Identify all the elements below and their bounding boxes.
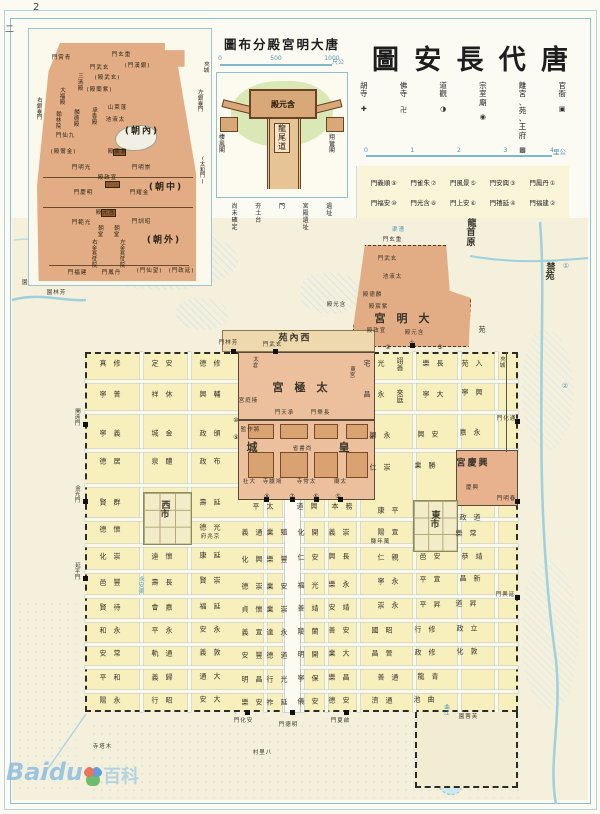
margin-tick-number: ① — [563, 262, 569, 270]
daming-inset-label: ( 太 和 門 ) — [200, 157, 207, 186]
government-office-block — [314, 424, 338, 439]
scale-tick: 1 — [410, 146, 414, 154]
ward-label: 樂豐 — [260, 556, 295, 563]
daming-inset-label: 殿宸紫 — [107, 150, 128, 156]
legend-item: 佛 寺卍 — [400, 82, 408, 154]
hanyuan-plan-box: 殿元含 龍 尾 道 棲 鳳 閣 翔 鸞 閣 — [216, 72, 348, 198]
ward-label: 寧保 — [291, 675, 326, 682]
ward-label: 道興 — [290, 503, 325, 510]
title-char: 唐 — [541, 38, 568, 77]
ward-label: 樂長 — [416, 360, 451, 367]
government-office-block — [280, 452, 308, 478]
daming-inset-label: (殿鸞金) — [50, 150, 77, 156]
region-label: 宮明大 — [364, 313, 441, 325]
street-line — [85, 449, 238, 452]
scale-tick: 0 — [218, 55, 222, 62]
ward-label: 陵蘭 — [291, 628, 326, 635]
ward-label: 昌永 — [357, 391, 392, 398]
daming-inset-label: 池液太 — [105, 118, 126, 124]
gate-label: 延 平 門 — [74, 564, 82, 581]
ward-label: 仁安 — [291, 554, 326, 561]
gate-square-marker — [83, 576, 88, 581]
daming-inset-label: (門政延) — [168, 269, 195, 275]
street-line — [85, 643, 518, 646]
hall-marker — [105, 181, 120, 188]
daming-inset-label: 門明崇 — [131, 166, 152, 172]
daming-inset-label: 門範光 — [71, 221, 92, 227]
ward-label: 政頒 — [193, 430, 228, 437]
daming-inset-label: 朝 堂 — [97, 227, 105, 239]
region-label: 龍 首 原 — [465, 220, 478, 248]
ward-label: 行光 — [260, 676, 295, 683]
hanyuan-legend-item: 尚 未 確 定 — [232, 204, 238, 232]
gate-index-entry: 門福建② — [529, 197, 555, 207]
daming-inset-label: 殿元含 — [95, 211, 116, 217]
hanyuan-legend-item: 遺 址 — [326, 204, 332, 232]
ward-label: 興長 — [322, 553, 357, 560]
inset-title: 圖布分殿宮明大唐 — [214, 34, 350, 53]
gate-index-entry: 門安興③ — [490, 177, 516, 187]
map-sheet: 2 二 真修定安德修寧普祥休興輔寧義城金政頒德居泉醴政布賢群壽延德懷德光化崇遠懷… — [0, 0, 600, 814]
legend-label: 佛 寺 — [400, 82, 408, 99]
gate-square-marker — [290, 710, 295, 715]
page-number: 2 — [33, 2, 39, 13]
ward-label: 城金 — [145, 430, 180, 437]
terrain-hatch — [522, 330, 574, 450]
region-label: 寺臚鴻 — [262, 480, 283, 486]
daming-inset-label: 門福建 — [67, 271, 88, 277]
region-label: 門武玄 — [262, 343, 283, 349]
daming-inset-label: 夾 城 — [203, 63, 211, 75]
inner-wall-line — [43, 207, 193, 208]
daming-palace-inset: 門霄青門玄重三 清 殿門武玄(門漢銀)大 福 殿(殿武玄)(殿蘭紫)翰 林 院麟… — [28, 28, 212, 286]
region-label: 曲 江 — [443, 706, 451, 718]
ward-label: 達永 — [260, 629, 295, 636]
region-label: 門樂長 — [310, 411, 331, 417]
scale-tick: 0 — [364, 146, 368, 154]
region-label: 西 市 — [159, 502, 172, 521]
ward-label: 善靖 — [291, 605, 326, 612]
east-pavilion — [326, 117, 344, 132]
gate-index-entry: 門禧延④ — [490, 197, 516, 207]
gate-number-marker: ② — [385, 345, 390, 351]
daming-inset-label: 門武玄 — [89, 66, 110, 72]
region-label: 慶興 — [465, 486, 479, 492]
region-label: 渠漕 — [391, 228, 405, 234]
gate-label: 門明春 — [496, 497, 517, 503]
watermark-suffix: 百科 — [103, 767, 139, 788]
ward-label: 濟通 — [365, 697, 400, 704]
gate-square-marker — [515, 595, 520, 600]
ward-label: 平宣 — [413, 576, 448, 583]
region-label: 園林芳 — [46, 291, 67, 297]
legend-item: 胡 寺✚ — [360, 82, 368, 154]
ward-label: 賢待 — [93, 604, 128, 611]
scale-bar-m: 尺公 05001000 — [220, 55, 344, 68]
gate-index-row2: 門福安⑩門光含⑧門上安⑥門禧延④門福建② — [357, 197, 569, 207]
ward-label: 儀安 — [291, 698, 326, 705]
street-line — [375, 411, 518, 414]
watermark-brand: Baidu — [6, 758, 83, 786]
region-label: 府兆京 — [200, 535, 221, 541]
scale-tick: 500 — [270, 55, 281, 62]
street-line — [85, 595, 518, 598]
street-line — [85, 380, 238, 383]
daming-inset-label: 三 清 殿 — [77, 75, 85, 92]
gate-label: 門興延 — [495, 593, 516, 599]
gate-number-marker: ④ — [369, 435, 374, 441]
ward-label: 行修 — [408, 626, 443, 633]
ward-label: 業大 — [322, 650, 357, 657]
ward-label: 昌晉 — [365, 650, 400, 657]
ward-label: 義歸 — [145, 674, 180, 681]
daming-inset-label: (殿武玄) — [94, 76, 121, 82]
ward-label: 賢群 — [93, 499, 128, 506]
furong-garden-block — [415, 712, 518, 788]
gate-index-entry: 門上安⑥ — [450, 197, 476, 207]
legend-label: 胡 寺 — [360, 82, 368, 99]
street-line — [85, 619, 518, 622]
scale-bar-km: 里公 01234 — [366, 146, 562, 160]
inner-wall-line — [43, 177, 193, 178]
region-label: 監作將 — [240, 428, 261, 434]
ward-label: 寧興 — [455, 389, 490, 396]
ward-label: 政立 — [450, 625, 485, 632]
gate-square-marker — [83, 499, 88, 504]
ward-label: 德居 — [93, 458, 128, 465]
gate-index-row1: 門義順⑨門雀朱⑦門風景⑤門安興③門鳳丹① — [357, 177, 569, 187]
daming-inset-label: 門明光 — [71, 166, 92, 172]
street-line — [375, 380, 518, 383]
ward-label: 政修 — [408, 649, 443, 656]
daming-inset-label: 大 福 殿 — [59, 89, 67, 106]
daming-inset-label: 門訓昭 — [131, 220, 152, 226]
ward-label: 軌通 — [145, 650, 180, 657]
legend-symbol-icon: 卍 — [400, 105, 407, 115]
ward-label: 苑入 — [455, 360, 490, 367]
scale-tick: 4 — [550, 146, 554, 154]
gate-number-marker: ⑨ — [233, 435, 238, 441]
ward-label: 明開 — [291, 651, 326, 658]
region-label: 縣年萬 — [370, 540, 391, 546]
ward-label: 邑安 — [413, 553, 448, 560]
daming-inset-label: 左 金 吾 仗 院 — [119, 241, 127, 270]
ward-label: 化敦 — [450, 648, 485, 655]
region-label: 永 安 渠 — [138, 578, 146, 595]
ward-label: 義敦 — [193, 649, 228, 656]
ward-label: 政道 — [453, 514, 488, 521]
hanyuan-hall-inset: 圖布分殿宮明大唐 尺公 05001000 殿元含 龍 尾 道 棲 鳳 閣 翔 鸞… — [214, 34, 350, 264]
gate-number-marker: ③ — [437, 345, 442, 351]
gate-label: 門德明 — [278, 723, 299, 729]
scale-tick: 1000 — [324, 55, 339, 62]
ward-label: 龍青 — [411, 673, 446, 680]
daming-inset-label: 門慶明 — [73, 191, 94, 197]
legend-item: 離 宮 、 苑 、 王 府▩ — [519, 82, 527, 154]
ward-label: 本務 — [325, 503, 360, 510]
title-char: 圖 — [372, 38, 399, 77]
hanyuan-legend: 尚 未 確 定夯 土 台門宮 殿 遺 址遺 址 — [214, 204, 350, 232]
ward-label: 通大 — [193, 673, 228, 680]
legend-label: 宗 室 廟 — [479, 82, 487, 107]
legend-item: 道 觀◑ — [439, 82, 447, 154]
street-line — [495, 352, 498, 712]
gate-number-marker: ⑥ — [313, 494, 318, 500]
region-label: 禁 苑 — [544, 264, 557, 283]
region-label: 寺塔木 — [92, 745, 113, 751]
region-label: 皇 — [328, 442, 361, 454]
region-label: 殿元含 — [404, 331, 425, 337]
legend-symbol-icon: ◑ — [440, 105, 446, 113]
forest-hatch — [176, 298, 228, 330]
ward-label: 道昇 — [449, 600, 484, 607]
ward-label: 樂永 — [322, 581, 357, 588]
ward-label: 崇永 — [371, 602, 406, 609]
ward-label: 安永 — [193, 626, 228, 633]
ward-label: 善通 — [371, 674, 406, 681]
watermark-paw-icon — [83, 766, 103, 786]
ward-label: 池曲 — [407, 696, 442, 703]
street-line — [85, 690, 518, 693]
street-line — [85, 411, 238, 414]
region-label: 廟太 — [333, 480, 347, 486]
daming-inset-label: 門仙九 — [55, 134, 76, 140]
daming-inset-label: 翰 林 院 — [55, 113, 63, 130]
ward-label: 行昭 — [145, 697, 180, 704]
ward-label: 嘉永 — [453, 429, 488, 436]
jiacheng-corridor — [506, 352, 519, 452]
legend-item: 宗 室 廟◉ — [479, 82, 487, 154]
gate-number-marker: ⑩ — [233, 418, 238, 424]
daming-inset-label: 朝 堂 — [113, 227, 121, 239]
ward-label: 興輔 — [193, 391, 228, 398]
ward-label: 化開 — [291, 529, 326, 536]
ward-label: 業殖 — [260, 529, 295, 536]
daming-inset-label: (朝外) — [145, 236, 181, 245]
ward-label: 和永 — [93, 627, 128, 634]
daming-inset-label: 右 金 吾 仗 院 — [91, 241, 99, 270]
title-char: 長 — [457, 38, 484, 77]
region-label: 殿光含 — [326, 303, 347, 309]
region-label: 村里八 — [252, 751, 273, 757]
ward-label: 寧永 — [371, 578, 406, 585]
gate-index-entry: 門風景⑤ — [450, 177, 476, 187]
scale-tick: 3 — [503, 146, 507, 154]
gate-square-marker — [273, 349, 278, 354]
hanyuan-legend-item: 宮 殿 遺 址 — [303, 204, 309, 232]
west-pavilion-label: 棲 鳳 閣 — [219, 135, 225, 155]
region-label: 東 市 — [429, 512, 442, 531]
scale-unit: 里公 — [553, 146, 566, 156]
gate-index-panel: 門義順⑨門雀朱⑦門風景⑤門安興③門鳳丹① 門福安⑩門光含⑧門上安⑥門禧延④門福建… — [356, 166, 569, 218]
government-office-block — [248, 452, 274, 478]
daming-inset-label: 山萊蓬 — [107, 106, 128, 112]
ward-label: 德道 — [260, 652, 295, 659]
ward-label: 德修 — [193, 360, 228, 367]
ward-label: 平和 — [93, 674, 128, 681]
daming-inset-label: 殿政宣 — [97, 176, 118, 182]
gate-index-entry: 門雀朱⑦ — [410, 177, 436, 187]
title-char: 代 — [499, 38, 526, 77]
ward-label: 祚延 — [260, 699, 295, 706]
daming-inset-label: 門玄重 — [111, 53, 132, 59]
ward-label: 寧義 — [93, 430, 128, 437]
ward-label: 化崇 — [93, 553, 128, 560]
region-label: 門玄重 — [382, 238, 403, 244]
region-label: 東 宮 — [349, 368, 357, 380]
ramp-label: 龍 尾 道 — [274, 123, 290, 153]
ward-label: 福光 — [291, 582, 326, 589]
region-label: 省書尚 — [292, 447, 313, 453]
ward-label: 平太 — [246, 503, 281, 510]
ward-label: 興安 — [411, 431, 446, 438]
ward-label: 昌新 — [453, 575, 488, 582]
region-label: 苑 — [472, 326, 493, 333]
ward-label: 康延 — [193, 552, 228, 559]
gate-square-marker — [344, 710, 349, 715]
ward-label: 定安 — [145, 360, 180, 367]
west-pavilion — [220, 117, 238, 132]
ward-label: 翊 善 — [397, 358, 404, 373]
ward-label: 泉醴 — [145, 458, 180, 465]
daming-inset-label: 右 銀 臺 門 — [36, 99, 44, 122]
ward-label: 會嘉 — [145, 604, 180, 611]
gate-label: 門化安 — [233, 719, 254, 725]
daming-inset-label: 左 銀 臺 門 — [197, 91, 205, 114]
scale-line — [220, 64, 332, 66]
gate-number-marker: ⑤ — [335, 494, 340, 500]
ward-label: 恭靖 — [455, 553, 490, 560]
daming-inset-label: 麟 德 殿 — [73, 111, 81, 128]
ward-label: 宅光 — [357, 360, 392, 367]
region-label: 夾 城 — [499, 358, 507, 370]
east-pavilion-label: 翔 鸞 閣 — [329, 135, 335, 155]
gate-label: 門夏啟 — [330, 719, 351, 725]
ward-label: 福延 — [193, 603, 228, 610]
ward-label: 真修 — [93, 360, 128, 367]
ward-label: 陽宣 — [371, 529, 406, 536]
ward-label: 樂昌 — [322, 674, 357, 681]
region-label: 殿宸紫 — [368, 305, 389, 311]
legend-symbol-icon: ◉ — [480, 113, 486, 121]
region-label: 殿德麟 — [362, 293, 383, 299]
gate-index-entry: 門福安⑩ — [371, 197, 397, 207]
daming-inset-label: (門漢銀) — [124, 64, 151, 70]
gate-label: 門化通 — [496, 417, 517, 423]
ward-label: 邑豐 — [93, 579, 128, 586]
region-label: 宮庭掖 — [238, 399, 259, 405]
ward-label: 義崇 — [322, 529, 357, 536]
gate-label: 開 遠 門 — [74, 410, 82, 427]
region-label: 門武玄 — [377, 257, 398, 263]
gate-index-entry: 門鳳丹① — [529, 177, 555, 187]
ward-label: 德安 — [322, 697, 357, 704]
ward-label: 業崇 — [260, 606, 295, 613]
hanyuan-legend-item: 門 — [279, 204, 285, 232]
region-label: 門天承 — [274, 411, 295, 417]
ward-label: 仁親 — [371, 554, 406, 561]
ward-label: 康平 — [371, 507, 406, 514]
ward-label: 陽永 — [93, 697, 128, 704]
ward-label: 業安 — [260, 583, 295, 590]
ward-label: 賢崇 — [193, 577, 228, 584]
street-line — [357, 500, 360, 712]
ward-label: 德光 — [193, 524, 228, 531]
gate-square-marker — [231, 349, 236, 354]
street-line — [85, 570, 518, 573]
gate-number-marker: ① — [409, 341, 414, 347]
ward-label: 寧普 — [93, 391, 128, 398]
gate-square-marker — [245, 710, 250, 715]
scale-tick: 2 — [457, 146, 461, 154]
ward-label: 壽長 — [145, 579, 180, 586]
ward-label: 興永 — [363, 432, 398, 439]
watermark: Baidu百科 — [6, 758, 156, 806]
page-side-mark: 二 — [5, 22, 14, 35]
ward-label: 德懷 — [93, 526, 128, 533]
ward-label: 壽延 — [193, 499, 228, 506]
daming-inset-label: (門仙望) — [136, 269, 163, 275]
ward-label: 安大 — [193, 696, 228, 703]
ward-label: 樂常 — [449, 530, 484, 537]
gate-number-marker: ⑧ — [264, 494, 269, 500]
hanyuan-hall: 殿元含 — [249, 89, 317, 119]
street-line — [85, 484, 238, 487]
ward-label: 國昭 — [365, 627, 400, 634]
ward-label: 安常 — [93, 650, 128, 657]
ward-label: 仁崇 — [363, 464, 398, 471]
ward-label: 來 庭 — [397, 390, 404, 405]
region-label: 寺常太 — [296, 480, 317, 486]
ward-label: 政布 — [193, 458, 228, 465]
daming-inset-label: 承 香 殿 — [91, 109, 99, 126]
ward-label: 寧大 — [416, 391, 451, 398]
region-label: 池液太 — [382, 275, 403, 281]
daming-inset-label: 門鳳丹 — [101, 271, 122, 277]
region-label: 園蓉芙 — [458, 715, 479, 721]
region-label: 門林芳 — [218, 341, 239, 347]
ward-label: 安靖 — [322, 604, 357, 611]
title-char: 安 — [414, 38, 441, 77]
legend-symbol-icon: ▣ — [559, 105, 566, 113]
region-label: 殿政宣 — [366, 329, 387, 335]
hanyuan-legend-item: 夯 土 台 — [255, 204, 261, 232]
ward-label: 祥休 — [145, 391, 180, 398]
daming-inset-label: (朝內) — [123, 127, 159, 136]
legend-item: 官 衙▣ — [558, 82, 566, 154]
margin-tick-number: ② — [562, 382, 568, 390]
scale-line — [366, 155, 552, 157]
gate-index-entry: 門義順⑨ — [371, 177, 397, 187]
map-title: 圖安長代唐 — [372, 38, 568, 77]
legend-symbol-icon: ✚ — [361, 105, 367, 113]
region-label: 宮極太 — [262, 382, 339, 394]
daming-inset-label: (朝中) — [147, 183, 183, 192]
ward-label: 平永 — [145, 627, 180, 634]
legend: 胡 寺✚佛 寺卍道 觀◑宗 室 廟◉離 宮 、 苑 、 王 府▩官 衙▣ — [360, 82, 566, 154]
gate-index-entry: 門光含⑧ — [410, 197, 436, 207]
ward-label: 平昇 — [413, 601, 448, 608]
legend-label: 離 宮 、 苑 、 王 府 — [519, 82, 527, 140]
daming-inset-label: 門霄青 — [51, 56, 72, 62]
street-line — [85, 666, 518, 669]
region-label: 城 — [236, 442, 269, 454]
legend-label: 官 衙 — [558, 82, 566, 99]
government-office-block — [280, 424, 308, 439]
daming-inset-label: (殿蘭紫) — [86, 88, 113, 94]
region-label: 宮慶興 — [454, 459, 489, 468]
gate-square-marker — [83, 422, 88, 427]
